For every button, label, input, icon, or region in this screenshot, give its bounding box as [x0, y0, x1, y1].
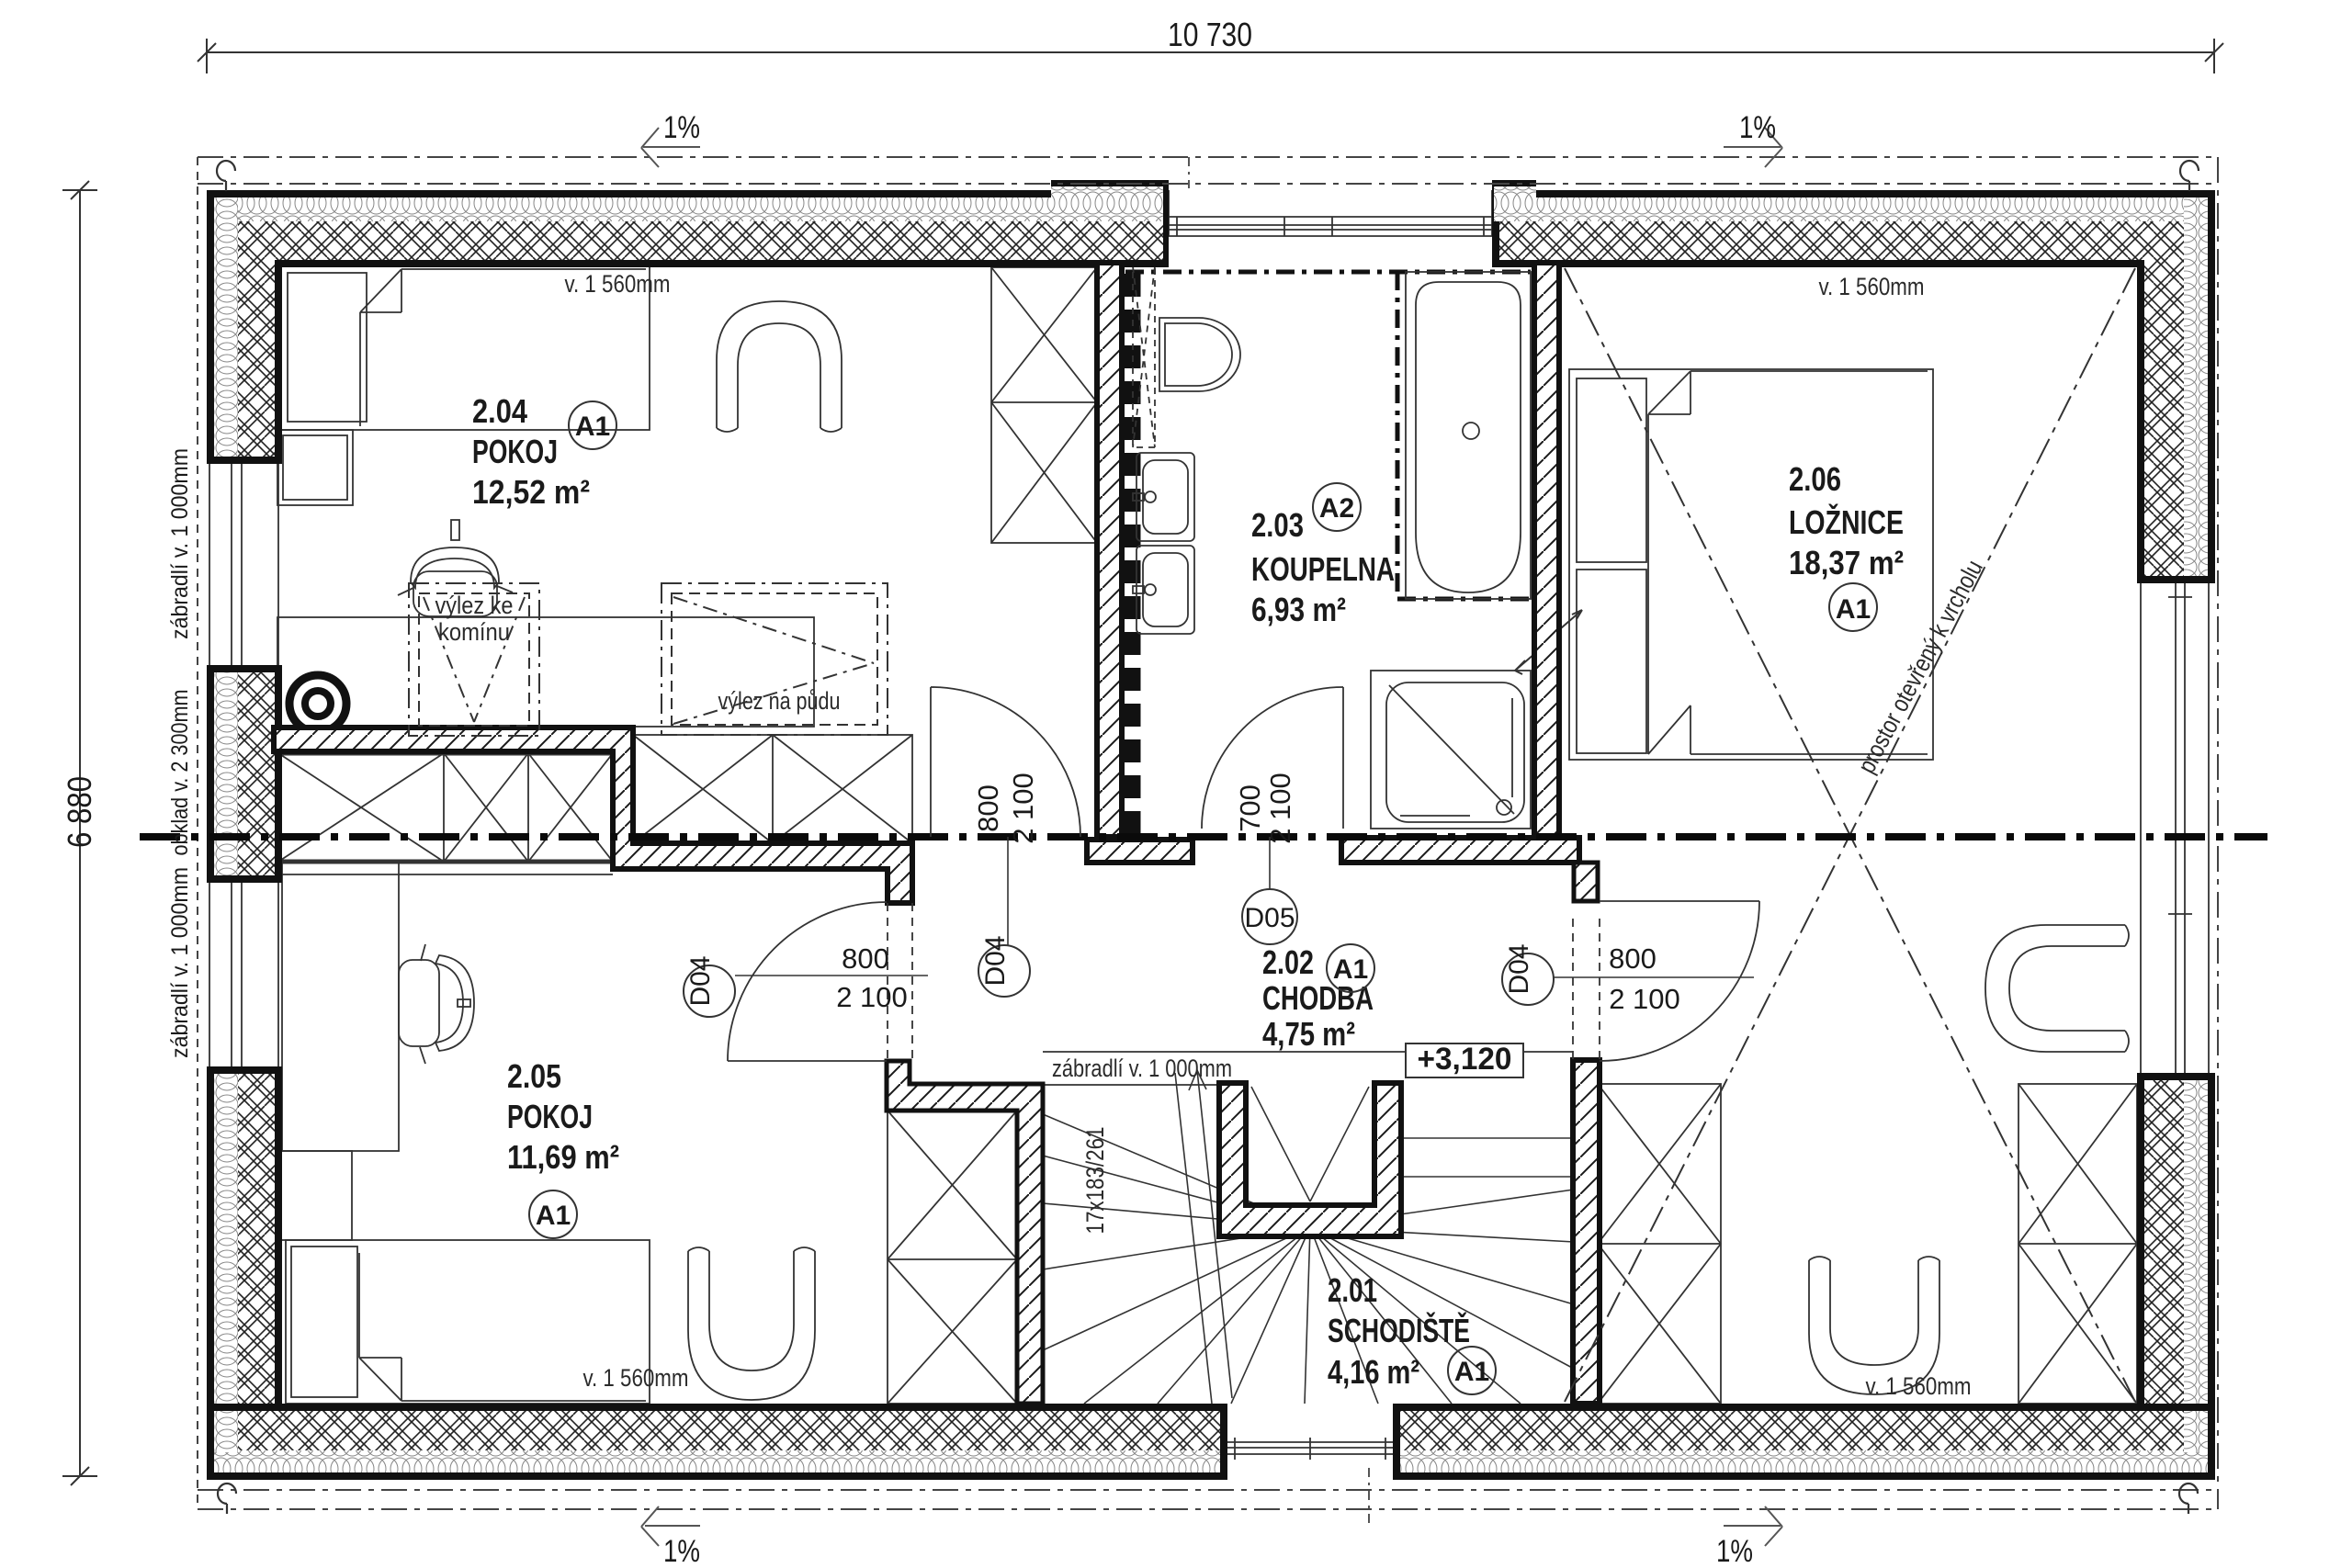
- svg-text:zábradlí v. 1 000mm: zábradlí v. 1 000mm: [1052, 1055, 1232, 1082]
- svg-text:12,52 m²: 12,52 m²: [472, 473, 590, 511]
- svg-text:800: 800: [1609, 942, 1657, 975]
- svg-text:LOŽNICE: LOŽNICE: [1789, 502, 1904, 541]
- svg-text:v. 1 560mm: v. 1 560mm: [1819, 273, 1925, 300]
- svg-text:zábradlí v. 1 000mm: zábradlí v. 1 000mm: [167, 448, 193, 639]
- svg-text:D04: D04: [685, 955, 716, 1006]
- svg-text:CHODBA: CHODBA: [1262, 979, 1374, 1017]
- svg-text:komínu: komínu: [438, 618, 510, 646]
- svg-text:D04: D04: [980, 935, 1011, 986]
- svg-text:2.04: 2.04: [472, 392, 527, 430]
- svg-text:+3,120: +3,120: [1418, 1042, 1512, 1077]
- svg-text:výlez ke: výlez ke: [435, 592, 514, 619]
- svg-text:A1: A1: [1454, 1357, 1489, 1387]
- svg-text:KOUPELNA: KOUPELNA: [1251, 550, 1395, 588]
- svg-text:1%: 1%: [663, 1534, 700, 1568]
- svg-text:4,75 m²: 4,75 m²: [1262, 1015, 1355, 1053]
- svg-text:2 100: 2 100: [1264, 773, 1296, 844]
- svg-text:A1: A1: [1333, 954, 1368, 985]
- svg-text:2.03: 2.03: [1251, 506, 1304, 544]
- svg-text:v. 1 560mm: v. 1 560mm: [1866, 1372, 1972, 1400]
- svg-text:2.02: 2.02: [1262, 943, 1314, 981]
- svg-text:výlez na půdu: výlez na půdu: [718, 687, 841, 715]
- svg-text:18,37 m²: 18,37 m²: [1789, 544, 1904, 581]
- svg-text:POKOJ: POKOJ: [472, 433, 558, 470]
- svg-text:6 880: 6 880: [61, 776, 98, 848]
- svg-text:obklad v. 2 300mm: obklad v. 2 300mm: [167, 690, 193, 856]
- svg-text:v. 1 560mm: v. 1 560mm: [565, 270, 671, 298]
- svg-text:zábradlí v. 1 000mm: zábradlí v. 1 000mm: [167, 867, 193, 1058]
- svg-text:11,69 m²: 11,69 m²: [507, 1138, 619, 1176]
- svg-text:6,93 m²: 6,93 m²: [1251, 591, 1346, 628]
- svg-text:A1: A1: [1836, 594, 1871, 625]
- svg-text:2 100: 2 100: [1609, 983, 1680, 1015]
- svg-text:10 730: 10 730: [1168, 16, 1252, 53]
- svg-text:SCHODIŠTĚ: SCHODIŠTĚ: [1328, 1311, 1470, 1349]
- svg-text:POKOJ: POKOJ: [507, 1098, 593, 1135]
- svg-text:1%: 1%: [1716, 1534, 1753, 1568]
- svg-text:A2: A2: [1319, 493, 1354, 524]
- svg-text:D04: D04: [1504, 943, 1534, 994]
- svg-text:800: 800: [842, 942, 889, 975]
- svg-text:800: 800: [972, 784, 1004, 832]
- svg-text:700: 700: [1234, 784, 1266, 832]
- svg-text:2.01: 2.01: [1328, 1271, 1377, 1309]
- svg-text:v. 1 560mm: v. 1 560mm: [583, 1364, 689, 1392]
- svg-text:2.06: 2.06: [1789, 460, 1841, 498]
- svg-text:D05: D05: [1244, 903, 1295, 933]
- svg-text:2.05: 2.05: [507, 1057, 561, 1095]
- svg-text:A1: A1: [575, 412, 610, 442]
- svg-text:2 100: 2 100: [1007, 773, 1039, 844]
- svg-text:4,16 m²: 4,16 m²: [1328, 1353, 1419, 1391]
- svg-text:17x183/261: 17x183/261: [1081, 1127, 1109, 1235]
- svg-text:1%: 1%: [663, 110, 700, 145]
- svg-text:A1: A1: [536, 1201, 571, 1231]
- svg-text:2 100: 2 100: [836, 981, 908, 1013]
- svg-text:1%: 1%: [1739, 110, 1776, 145]
